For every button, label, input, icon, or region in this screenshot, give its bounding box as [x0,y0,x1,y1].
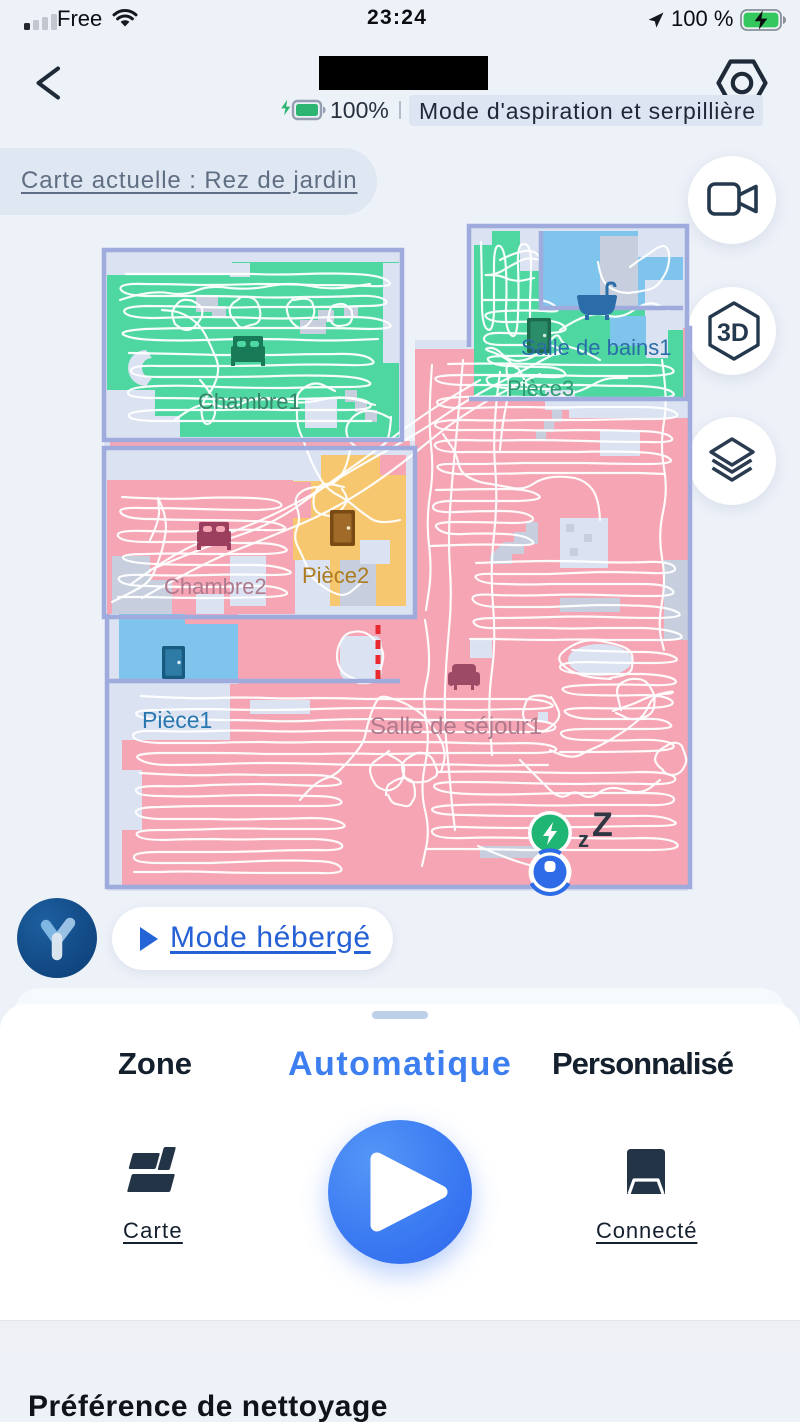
svg-text:Pièce2: Pièce2 [302,563,369,588]
svg-text:Chambre2: Chambre2 [164,574,267,599]
svg-text:Z: Z [592,806,613,844]
svg-text:Pièce3: Pièce3 [507,376,574,401]
svg-text:Chambre1: Chambre1 [198,389,301,414]
svg-text:3D: 3D [717,319,749,347]
svg-text:Pièce1: Pièce1 [142,707,212,733]
svg-text:Salle de séjour1: Salle de séjour1 [370,713,542,740]
svg-text:Salle de bains1: Salle de bains1 [521,335,671,360]
svg-text:z: z [578,827,589,852]
